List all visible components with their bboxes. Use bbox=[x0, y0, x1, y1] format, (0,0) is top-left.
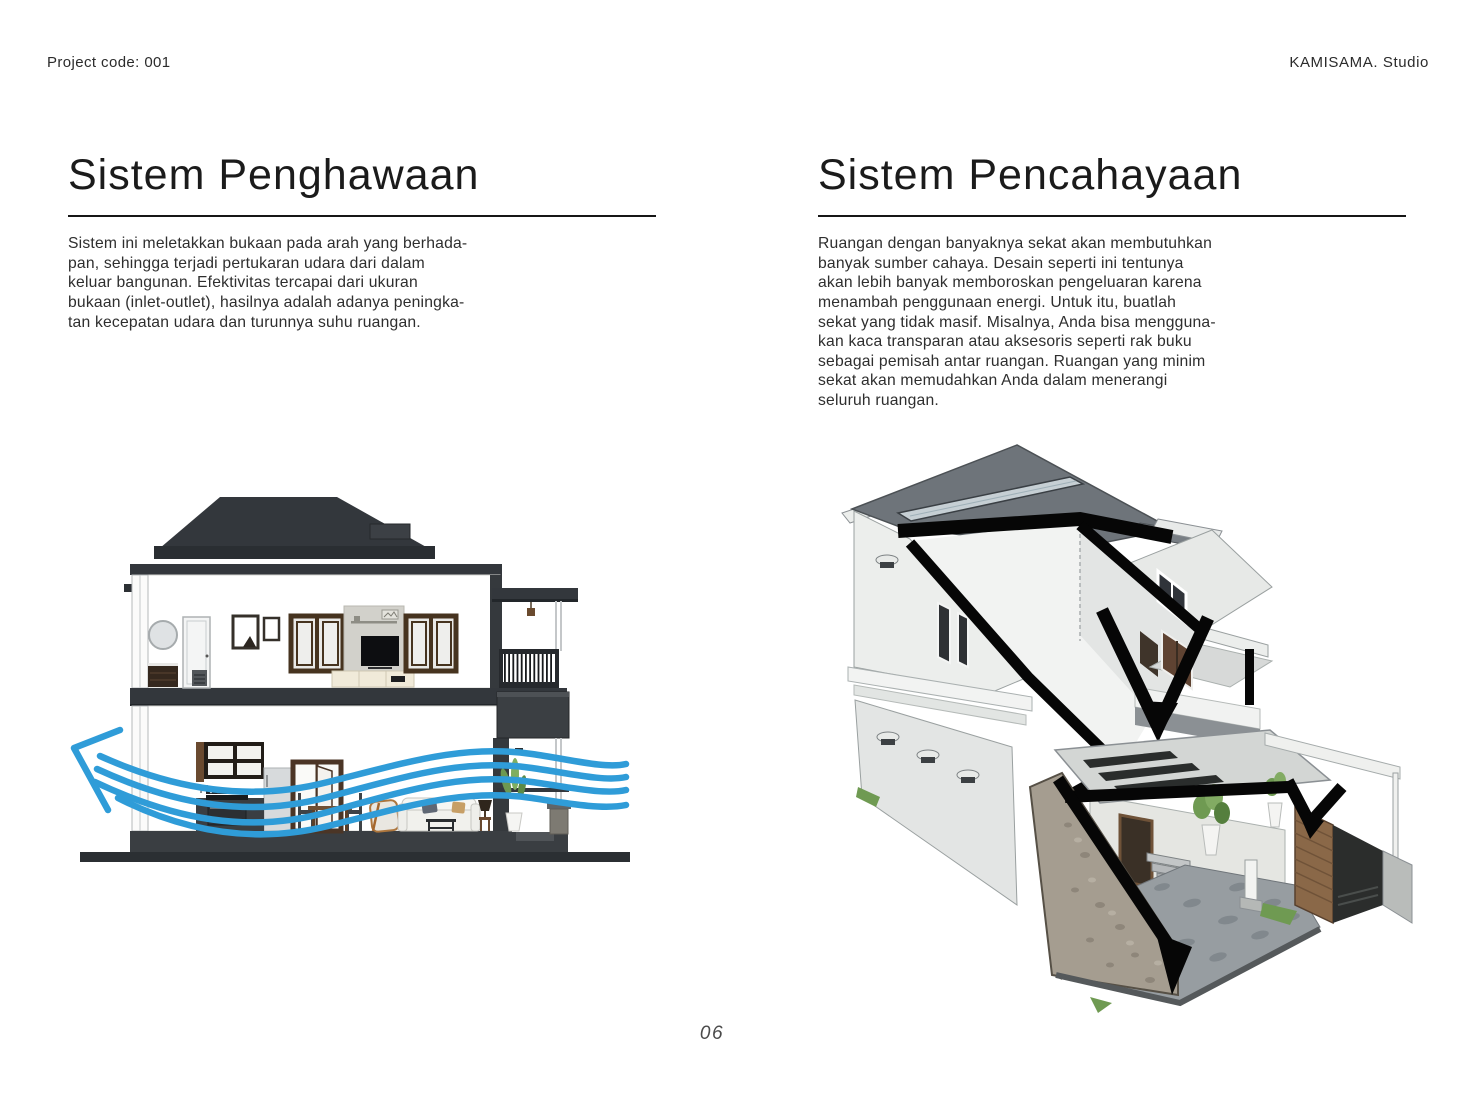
isometric-cutaway-daylight-illustration bbox=[840, 435, 1440, 1015]
title-underline bbox=[68, 215, 656, 217]
studio-name: KAMISAMA. Studio bbox=[1289, 54, 1429, 71]
courtyard bbox=[1030, 730, 1412, 1013]
lower-left-wall bbox=[848, 667, 1032, 905]
project-code: Project code: 001 bbox=[47, 54, 171, 71]
section-lighting: Sistem Pencahayaan Ruangan dengan banyak… bbox=[818, 152, 1406, 411]
page-number: 06 bbox=[690, 1023, 734, 1045]
lighting-title: Sistem Pencahayaan bbox=[818, 152, 1406, 199]
ventilation-title: Sistem Penghawaan bbox=[68, 152, 656, 199]
section-ventilation: Sistem Penghawaan Sistem ini meletakkan … bbox=[68, 152, 656, 332]
house-section-airflow-illustration bbox=[60, 480, 640, 875]
ventilation-body: Sistem ini meletakkan bukaan pada arah y… bbox=[68, 234, 548, 332]
title-underline bbox=[818, 215, 1406, 217]
brochure-page: Project code: 001 KAMISAMA. Studio Siste… bbox=[0, 0, 1476, 1107]
lighting-body: Ruangan dengan banyaknya sekat akan memb… bbox=[818, 234, 1298, 410]
